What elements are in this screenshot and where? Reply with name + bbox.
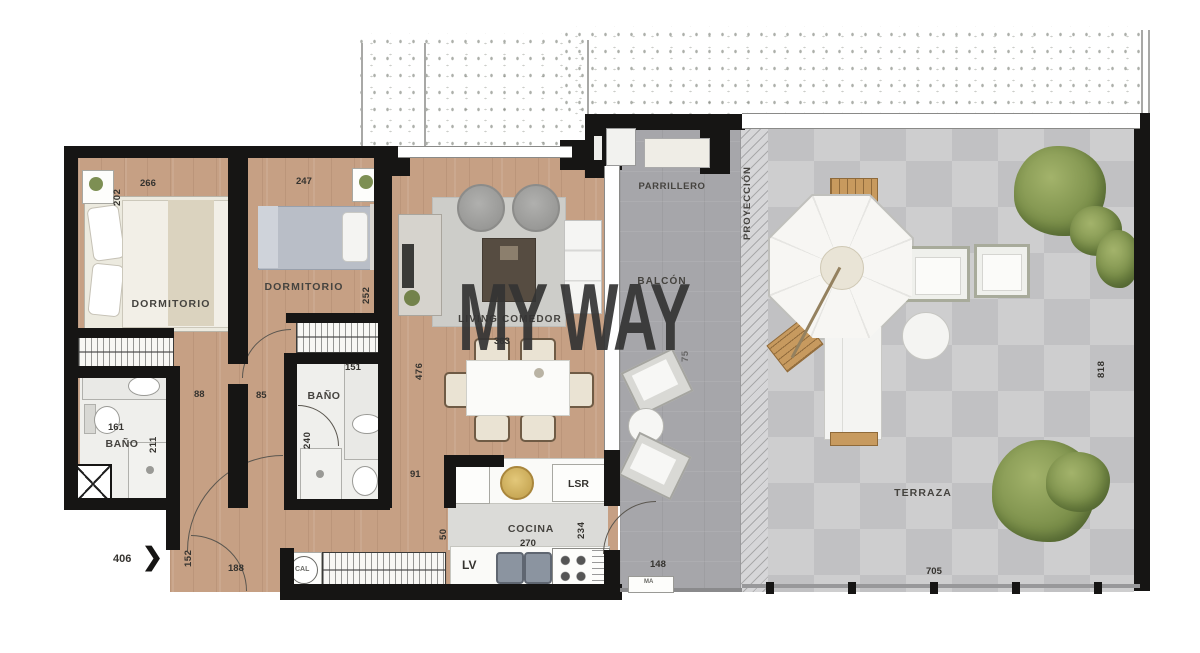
dishwasher-label: LV — [462, 558, 476, 572]
wardrobe — [296, 321, 388, 353]
wall — [166, 498, 180, 550]
terrace-label: TERRAZA — [878, 487, 968, 499]
sink-bowl — [524, 552, 552, 584]
terrace-depth-dim: 818 — [1096, 342, 1107, 378]
bed-sheet-fold — [258, 206, 278, 268]
parapet-post — [766, 582, 774, 594]
parapet-post — [1012, 582, 1020, 594]
entry-arrow-icon: ❯ — [142, 545, 163, 570]
survey-line — [1141, 30, 1143, 115]
grill-cabinet — [606, 128, 636, 166]
kitchen-width-dim: 270 — [520, 538, 536, 549]
kitchen-label: COCINA — [496, 523, 566, 535]
wall — [64, 146, 78, 508]
hall-dim-91: 91 — [410, 469, 421, 480]
parapet-post — [848, 582, 856, 594]
floor-plan: DORMITORIO 266 202 DORMITORIO 247 252 16… — [0, 0, 1200, 653]
projection-label: PROYECCIÓN — [742, 130, 753, 240]
shower-drain — [316, 470, 324, 478]
wall — [444, 455, 456, 508]
plant-icon — [89, 177, 103, 191]
round-table — [902, 312, 950, 360]
grill-shelf — [594, 136, 602, 160]
plant-icon — [404, 290, 420, 306]
bathroom2-label: BAÑO — [298, 390, 350, 402]
pouf-chair — [512, 184, 560, 232]
terrace-parapet-bottom — [742, 584, 1140, 588]
shower-drain — [146, 466, 154, 474]
parapet-post — [930, 582, 938, 594]
bathroom2-depth-dim: 240 — [302, 413, 313, 449]
terrace-sofa — [824, 326, 882, 440]
watermark: MY WAY — [458, 270, 689, 366]
bedroom2-width-dim: 247 — [296, 176, 312, 187]
wall — [280, 584, 622, 600]
balcony-marker: MA — [644, 579, 653, 585]
stipple-zone-left — [355, 33, 590, 146]
toilet-bowl — [352, 466, 378, 496]
grill-label: PARRILLERO — [622, 181, 722, 192]
wall — [286, 353, 390, 364]
bedroom1-depth-dim: 202 — [112, 170, 123, 206]
bedroom1-width-dim: 266 — [140, 178, 156, 189]
pouf-chair — [457, 184, 505, 232]
balcony-width-dim: 148 — [650, 559, 666, 570]
wall — [286, 313, 388, 323]
wall — [64, 328, 174, 338]
living-window — [398, 146, 572, 158]
hall-dim-152: 152 — [183, 533, 194, 567]
sink-basin — [128, 376, 160, 396]
grill-counter — [644, 138, 710, 168]
armchair-cushion — [982, 254, 1022, 291]
washer-label: LSR — [568, 478, 589, 490]
bathroom2-code: 151 — [345, 362, 361, 373]
wardrobe — [78, 336, 174, 368]
bedroom2-label: DORMITORIO — [253, 281, 355, 293]
hall-closet — [322, 552, 446, 588]
wall — [604, 448, 620, 506]
parapet-post — [1094, 582, 1102, 594]
exterior-cutout — [0, 502, 170, 653]
wall — [64, 366, 174, 378]
kitchen-depth-dim: 234 — [576, 505, 587, 539]
terrace-sofa-base — [830, 432, 878, 446]
wall — [378, 318, 392, 508]
bathroom1-code: 161 — [108, 422, 124, 433]
terrace-parapet-top — [742, 113, 1140, 129]
wall — [228, 146, 248, 364]
sink-bowl — [496, 552, 524, 584]
hall-dim-188: 188 — [228, 563, 244, 574]
water-heater-label: CAL — [295, 566, 309, 573]
round-sink-gold — [500, 466, 534, 500]
dining-chair — [520, 414, 556, 442]
armchair — [906, 246, 970, 302]
bed-pillow — [342, 212, 368, 262]
survey-line — [424, 43, 426, 146]
terrace-wall-right — [1134, 113, 1150, 591]
survey-line — [587, 40, 589, 115]
kitchen-pass-dim: 50 — [438, 510, 449, 540]
survey-line — [361, 43, 363, 146]
wall — [284, 353, 297, 510]
bedroom2-depth-dim: 252 — [361, 268, 372, 304]
wall — [280, 548, 294, 600]
bedroom1-label: DORMITORIO — [120, 298, 222, 310]
coffee-table-decor — [500, 246, 518, 260]
hall-dim-88: 88 — [194, 389, 205, 400]
entry-unit-number: 406 — [113, 553, 131, 565]
stipple-zone-right — [560, 26, 1145, 115]
umbrella-hub — [820, 246, 864, 290]
hall-dim-85: 85 — [256, 390, 267, 401]
wall — [166, 366, 180, 510]
wall — [64, 498, 174, 510]
wall — [286, 499, 390, 510]
armchair-cushion — [915, 257, 961, 295]
living-depth-dim: 476 — [414, 344, 425, 380]
armchair — [974, 244, 1030, 298]
bush — [1046, 452, 1110, 512]
terrace-width-dim: 705 — [926, 566, 942, 577]
wall — [374, 146, 392, 318]
bathroom1-label: BAÑO — [96, 438, 148, 450]
stove — [552, 548, 610, 588]
fridge — [452, 462, 490, 504]
survey-line — [1148, 30, 1150, 115]
dining-chair — [474, 414, 510, 442]
wall — [228, 384, 248, 508]
bathroom1-depth-dim: 211 — [148, 417, 159, 453]
tv-screen — [402, 244, 414, 288]
plant-icon — [359, 175, 373, 189]
